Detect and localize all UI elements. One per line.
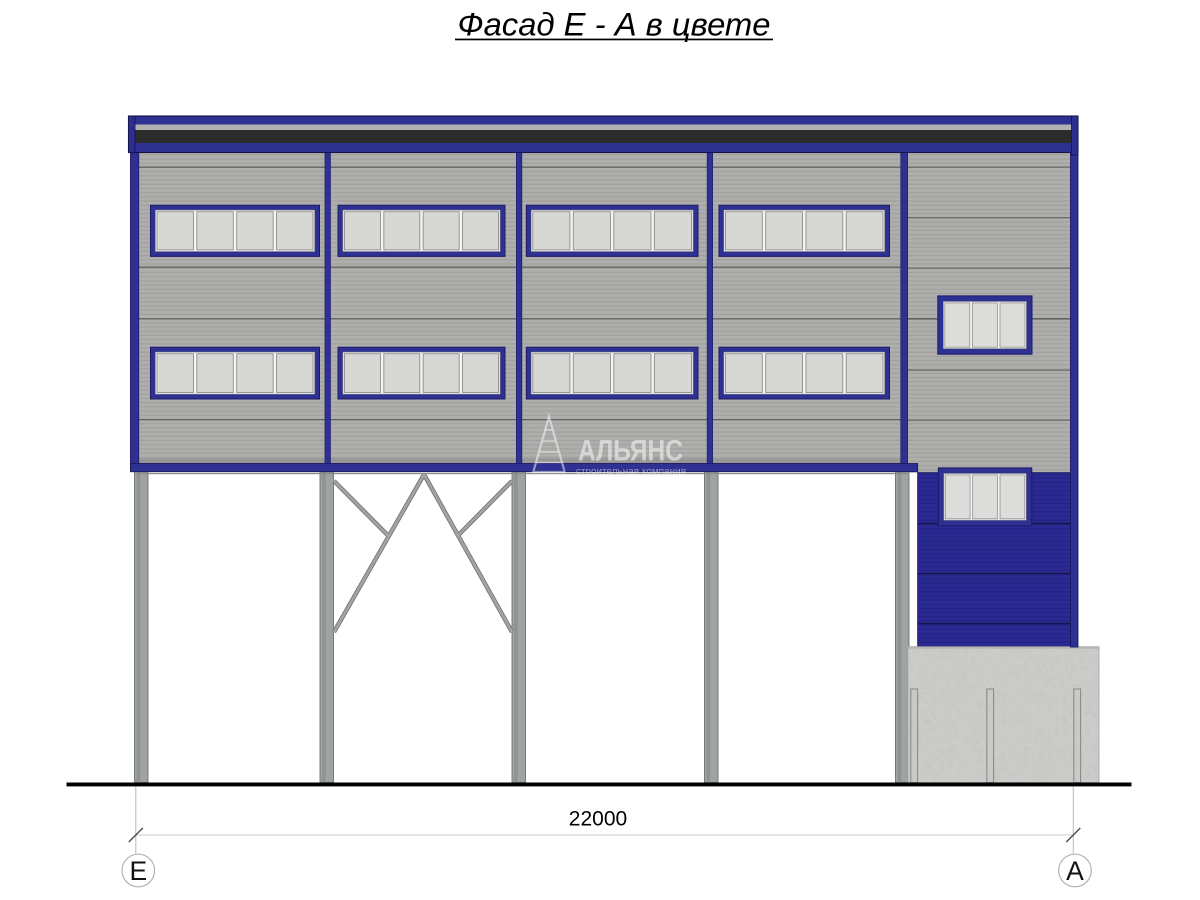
svg-text:строительная компания: строительная компания [576,466,686,477]
svg-text:Фасад Е - А в цвете: Фасад Е - А в цвете [458,7,771,43]
svg-text:Е: Е [129,856,147,886]
svg-text:А: А [1066,856,1084,886]
svg-text:АЛЬЯНС: АЛЬЯНС [578,435,683,468]
svg-text:22000: 22000 [569,808,627,831]
